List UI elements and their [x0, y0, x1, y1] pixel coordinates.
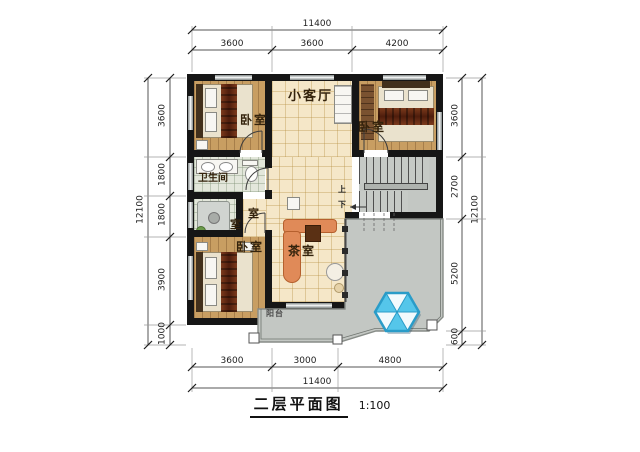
dim-left-seg-4: 3900 — [159, 258, 168, 302]
dim-bottom-seg-3: 4800 — [368, 357, 412, 366]
floor-plan: 小客厅 卧室 卧室 卫生间 室 室 卧室 茶室 阳台 上 下 11400 360… — [0, 0, 640, 452]
dim-top-seg-2: 3600 — [290, 40, 334, 49]
railing-post — [249, 333, 259, 343]
room-label-bedroom-tr: 卧室 — [358, 121, 386, 133]
room-label-living: 小客厅 — [288, 90, 333, 103]
dim-bottom-seg-1: 3600 — [210, 357, 254, 366]
room-label-bedroom-bl: 卧室 — [236, 241, 264, 253]
title-scale: 1:100 — [359, 399, 391, 412]
dim-right-overall: 12100 — [472, 188, 481, 232]
stair-label-down: 下 — [338, 201, 346, 209]
railing-post — [427, 320, 437, 330]
room-label-tea: 茶室 — [288, 245, 316, 257]
drawing-title: 二层平面图 1:100 — [225, 393, 415, 418]
title-text: 二层平面图 — [250, 393, 348, 418]
room-label-partial-b: 室 — [230, 219, 243, 230]
dim-bottom-overall: 11400 — [295, 378, 339, 387]
room-label-bedroom-tl: 卧室 — [240, 114, 268, 126]
dim-right-seg-1: 3600 — [452, 94, 461, 138]
dim-bottom-seg-2: 3000 — [283, 357, 327, 366]
stair-label-up: 上 — [338, 186, 346, 194]
room-label-bathroom: 卫生间 — [198, 174, 228, 184]
dim-left-seg-5: 1000 — [159, 312, 168, 356]
dim-left-seg-1: 3600 — [159, 94, 168, 138]
dim-top-overall: 11400 — [295, 20, 339, 29]
dim-right-seg-3: 5200 — [452, 252, 461, 296]
dim-left-seg-2: 1800 — [159, 153, 168, 197]
dim-right-seg-4: 600 — [452, 315, 461, 359]
dim-left-overall: 12100 — [137, 188, 146, 232]
dim-left-seg-3: 1800 — [159, 193, 168, 237]
room-label-partial-a: 室 — [248, 208, 261, 219]
door-arcs — [240, 129, 388, 233]
railing-post — [333, 335, 342, 344]
dim-top-seg-3: 4200 — [375, 40, 419, 49]
dim-top-seg-1: 3600 — [210, 40, 254, 49]
dim-right-seg-2: 2700 — [452, 165, 461, 209]
room-label-balcony: 阳台 — [266, 310, 284, 318]
